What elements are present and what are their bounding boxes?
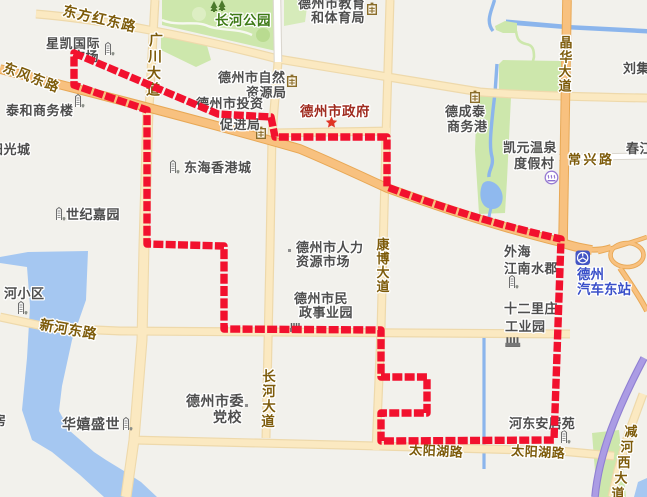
svg-text:德州市人力: 德州市人力 [296, 240, 364, 255]
svg-text:刘集: 刘集 [623, 61, 647, 76]
svg-text:资源市场: 资源市场 [296, 254, 350, 269]
svg-text:康博大道: 康博大道 [376, 237, 390, 294]
svg-text:阳光城: 阳光城 [0, 142, 31, 157]
svg-text:河东安居苑: 河东安居苑 [509, 416, 575, 431]
svg-text:政事业园: 政事业园 [299, 305, 353, 320]
svg-text:太阳湖路: 太阳湖路 [510, 443, 566, 461]
svg-text:和体育局: 和体育局 [311, 10, 365, 25]
svg-text:世纪嘉园: 世纪嘉园 [66, 207, 120, 222]
svg-text:德成泰: 德成泰 [445, 104, 486, 119]
svg-text:东海香港城: 东海香港城 [184, 160, 252, 175]
svg-text:度假村: 度假村 [514, 156, 555, 171]
svg-text:十二里庄: 十二里庄 [504, 301, 558, 316]
svg-text:春江: 春江 [625, 141, 647, 156]
svg-text:德州市委: 德州市委 [186, 393, 244, 409]
svg-text:外海: 外海 [503, 244, 531, 259]
svg-text:江南水郡: 江南水郡 [504, 261, 558, 276]
svg-text:长河公园: 长河公园 [215, 12, 271, 28]
svg-text:长河大道: 长河大道 [261, 368, 276, 429]
svg-text:河小区: 河小区 [4, 286, 45, 301]
svg-text:德州市民: 德州市民 [294, 291, 348, 306]
svg-text:德州市自然: 德州市自然 [218, 70, 286, 85]
svg-text:泰和商务楼: 泰和商务楼 [5, 103, 74, 118]
svg-text:凯元温泉: 凯元温泉 [503, 140, 558, 155]
svg-text:太阳湖路: 太阳湖路 [408, 442, 464, 460]
svg-text:德州: 德州 [577, 266, 604, 282]
svg-text:汽车东站: 汽车东站 [577, 281, 631, 297]
svg-text:晶华大道: 晶华大道 [558, 35, 572, 94]
svg-text:华嬉盛世: 华嬉盛世 [62, 416, 120, 432]
svg-text:德州市政府: 德州市政府 [300, 103, 370, 119]
svg-text:党校: 党校 [213, 409, 242, 425]
svg-text:常兴路: 常兴路 [568, 152, 615, 167]
svg-text:商务港: 商务港 [447, 119, 488, 134]
svg-text:房: 房 [0, 413, 7, 428]
svg-text:工业园: 工业园 [505, 319, 546, 334]
